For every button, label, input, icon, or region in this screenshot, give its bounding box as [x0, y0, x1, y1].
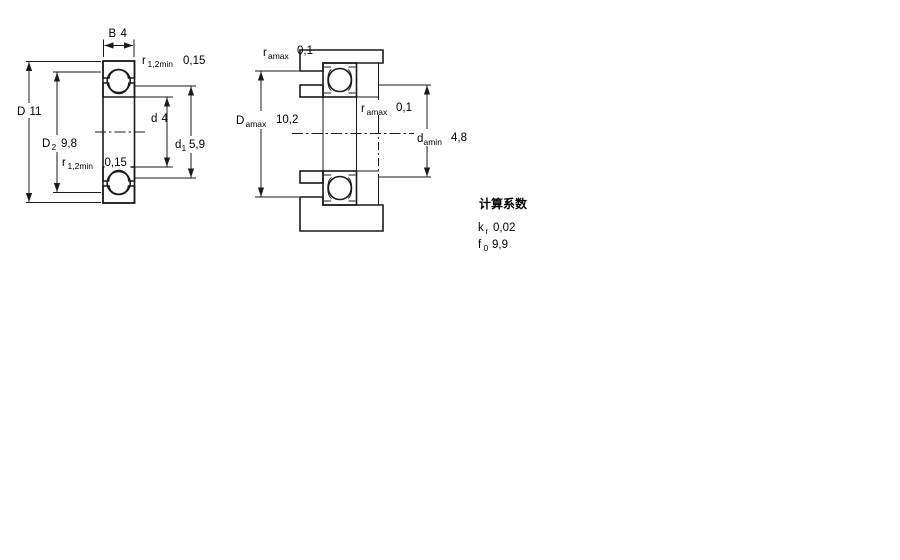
- figure-bearing-cross-section: B 4 r 1,2min 0,15 D 11 D 2 9,8 d 4 d 1 5…: [13, 28, 214, 203]
- dim-subscript: 1: [182, 143, 187, 153]
- label-r-top: r 1,2min 0,15: [142, 55, 205, 69]
- dim-subscript: amin: [424, 137, 443, 147]
- dim-value: 0,15: [183, 55, 205, 67]
- dim-subscript: 2: [52, 142, 57, 152]
- dim-symbol: D: [236, 115, 244, 127]
- dim-subscript: amax: [246, 119, 268, 129]
- bearing-dimension-drawing: B 4 r 1,2min 0,15 D 11 D 2 9,8 d 4 d 1 5…: [0, 0, 900, 560]
- factor-subscript: r: [486, 226, 489, 236]
- shaft-shoulder-top: [300, 85, 323, 97]
- ball-top: [328, 69, 351, 92]
- dim-value: 4: [121, 28, 128, 40]
- dim-value: 4,8: [451, 132, 467, 144]
- figure-abutment-dimensions: r amax 0,1 D amax 10,2 r amax 0,1 d amin…: [234, 45, 471, 231]
- dim-symbol: r: [361, 103, 365, 115]
- housing-bottom: [300, 197, 383, 231]
- dim-symbol: r: [263, 47, 267, 59]
- dim-value: 5,9: [189, 139, 205, 151]
- factor-kr: k r 0,02: [478, 222, 515, 236]
- ball-bottom: [328, 177, 351, 200]
- dim-subscript: 1,2min: [68, 161, 94, 171]
- dim-value: 9,8: [61, 138, 77, 150]
- dim-value: 0,1: [297, 45, 313, 57]
- dim-value: 0,15: [105, 157, 127, 169]
- factor-value: 9,9: [492, 239, 508, 251]
- dim-value: 0,1: [396, 102, 412, 114]
- dim-subscript: amax: [367, 107, 389, 117]
- dim-symbol: r: [142, 55, 146, 67]
- dim-subscript: amax: [268, 51, 290, 61]
- factor-subscript: 0: [484, 243, 489, 253]
- shaft-shoulder-bottom: [300, 171, 323, 183]
- dim-symbol: d: [417, 133, 423, 145]
- label-r-mid: r 1,2min 0,15: [62, 157, 127, 171]
- dim-value: 10,2: [276, 114, 298, 126]
- factor-f0: f 0 9,9: [478, 239, 508, 253]
- factor-value: 0,02: [493, 222, 515, 234]
- calculation-factors: 计算系数 k r 0,02 f 0 9,9: [478, 196, 528, 253]
- dim-symbol: D: [17, 106, 25, 118]
- ball-top: [107, 70, 130, 93]
- dim-symbol: d: [151, 113, 157, 125]
- dim-symbol: r: [62, 157, 66, 169]
- ball-bottom: [107, 172, 130, 195]
- label-d: d 4: [151, 113, 169, 125]
- factor-symbol: k: [478, 222, 484, 234]
- dim-value: 4: [162, 113, 169, 125]
- factor-symbol: f: [478, 239, 482, 251]
- label-D: D 11: [17, 106, 41, 118]
- dim-symbol: d: [175, 139, 181, 151]
- dim-value: 11: [30, 106, 42, 118]
- dim-symbol: B: [109, 28, 117, 40]
- drawing-svg: B 4 r 1,2min 0,15 D 11 D 2 9,8 d 4 d 1 5…: [0, 0, 900, 560]
- label-ra-top: r amax 0,1: [263, 45, 313, 61]
- calculation-factors-title: 计算系数: [479, 196, 528, 211]
- label-d1: d 1 5,9: [175, 139, 205, 153]
- dim-symbol: D: [42, 138, 50, 150]
- dim-subscript: 1,2min: [148, 59, 174, 69]
- label-B: B 4: [109, 28, 128, 40]
